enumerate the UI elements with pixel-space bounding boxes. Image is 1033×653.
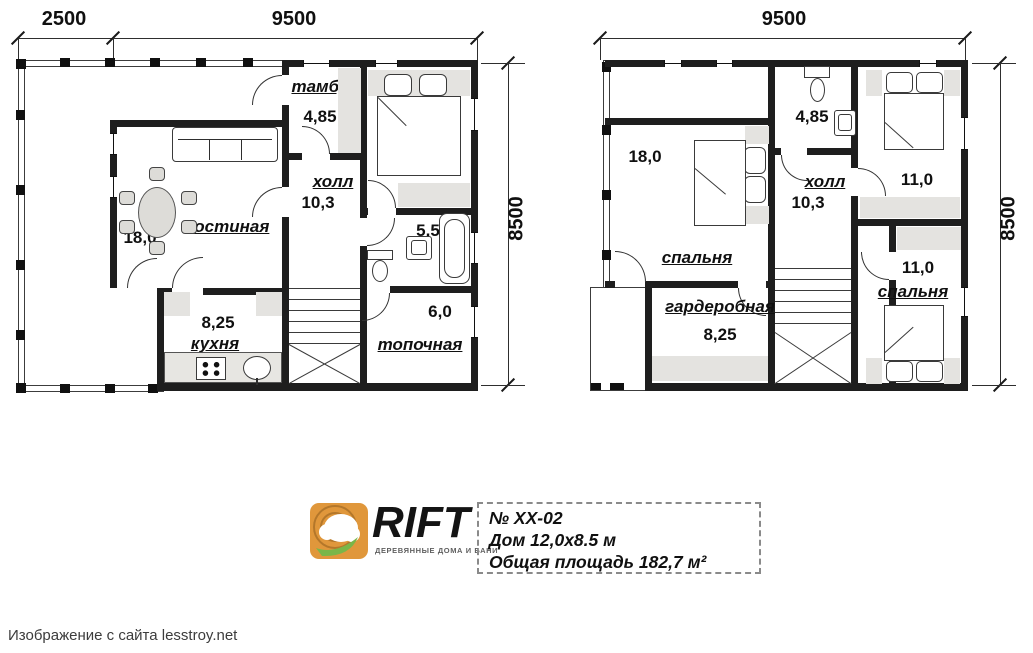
door-arc-icon: [302, 126, 330, 154]
pillow-icon: [744, 147, 766, 174]
terrace-wall: [18, 385, 164, 392]
room-label-bedroom: спальня: [868, 282, 958, 302]
wall: [360, 246, 367, 286]
floor-plan-sheet: 2500 9500 8500: [0, 0, 1033, 653]
post: [60, 58, 70, 67]
window-icon: [664, 60, 682, 67]
pillow-icon: [916, 72, 943, 93]
wall: [360, 60, 367, 160]
sink-icon: [411, 240, 427, 255]
project-size: Дом 12,0х8.5 м: [489, 529, 749, 551]
wall: [282, 217, 289, 383]
closet-icon: [338, 68, 361, 153]
pillow-icon: [419, 74, 447, 96]
wall: [775, 148, 781, 155]
dimension-label: 8500: [506, 185, 529, 253]
bed-icon: [884, 305, 944, 361]
dimension-label: 9500: [728, 8, 840, 31]
door-arc-icon: [368, 180, 396, 208]
nightstand-icon: [944, 358, 960, 384]
post: [16, 185, 25, 195]
nightstand-icon: [745, 206, 769, 224]
wall: [360, 208, 367, 218]
window-icon: [716, 60, 733, 67]
post: [105, 58, 115, 67]
room-area: 10,3: [288, 193, 348, 213]
dimension-label: 8500: [998, 185, 1021, 253]
window-icon: [919, 60, 937, 67]
dining-table-icon: [138, 187, 176, 238]
wall: [858, 219, 968, 226]
closet-icon: [860, 197, 960, 218]
post: [602, 125, 611, 135]
wall: [157, 383, 478, 391]
toilet-icon: [810, 78, 825, 102]
logo-brand-text: RIFT: [372, 498, 470, 548]
project-total-area: Общая площадь 182,7 м²: [489, 551, 749, 573]
wall: [889, 226, 896, 252]
extension-line: [113, 38, 114, 60]
project-number: № XX-02: [489, 507, 749, 529]
wall: [605, 118, 775, 125]
wall: [645, 383, 968, 391]
dimension-label: 9500: [238, 8, 350, 31]
wall: [605, 281, 615, 288]
window-icon: [110, 176, 117, 198]
dimension-line: [18, 38, 478, 39]
post: [602, 190, 611, 200]
logo-icon: [310, 503, 368, 560]
window-icon: [961, 287, 968, 317]
wall: [282, 60, 289, 75]
room-label-hall: холл: [795, 172, 855, 192]
room-area: 8,25: [690, 325, 750, 345]
stove-icon: [196, 357, 226, 380]
room-area: 11,0: [888, 258, 948, 278]
pillow-icon: [744, 176, 766, 203]
stairs-icon: [775, 268, 851, 333]
chair-icon: [181, 191, 197, 205]
door-arc-icon: [127, 258, 157, 288]
window-icon: [471, 98, 478, 131]
window-icon: [471, 306, 478, 338]
window-icon: [110, 133, 117, 155]
window-icon: [961, 117, 968, 150]
toilet-icon: [367, 250, 393, 260]
closet-icon: [897, 227, 961, 250]
nightstand-icon: [866, 70, 882, 96]
room-area: 18,0: [615, 147, 675, 167]
room-label-boiler: топочная: [368, 335, 472, 355]
nightstand-icon: [745, 126, 769, 144]
wall: [390, 286, 478, 293]
extension-line: [972, 385, 1016, 386]
door-arc-icon: [172, 257, 203, 288]
room-area: 8,25: [188, 313, 248, 333]
kitchen-sink-icon: [243, 356, 271, 380]
sofa-icon: [209, 139, 210, 160]
wall: [282, 105, 289, 153]
closet-icon: [652, 356, 768, 381]
dimension-label: 2500: [28, 8, 100, 31]
room-area: 10,3: [778, 193, 838, 213]
wall: [282, 153, 302, 160]
logo-icon: [310, 503, 368, 560]
extension-line: [18, 38, 19, 60]
pillow-icon: [886, 361, 913, 382]
door-arc-icon: [861, 252, 889, 280]
extension-line: [600, 38, 601, 60]
room-label-bedroom: спальня: [652, 248, 742, 268]
cabinet-icon: [256, 292, 282, 316]
post: [243, 58, 253, 67]
extension-line: [972, 63, 1016, 64]
toilet-icon: [372, 260, 388, 282]
nightstand-icon: [944, 70, 960, 96]
room-label-wardrobe: гардеробная: [660, 297, 780, 317]
post: [16, 330, 25, 340]
kitchen-sink-icon: [256, 378, 258, 385]
pillow-icon: [916, 361, 943, 382]
extension-line: [481, 385, 525, 386]
bed-icon: [694, 140, 746, 226]
source-caption: Изображение с сайта lesstroy.net: [8, 627, 237, 644]
wall: [646, 281, 738, 288]
post: [196, 58, 206, 67]
post: [16, 110, 25, 120]
sink-icon: [838, 114, 852, 131]
post: [60, 384, 70, 393]
sofa-icon: [172, 127, 278, 162]
door-arc-icon: [367, 218, 395, 246]
chair-icon: [119, 220, 135, 234]
room-area: 4,85: [782, 107, 842, 127]
sofa-icon: [178, 139, 272, 140]
post: [150, 58, 160, 67]
stairs-icon: [289, 288, 360, 345]
door-arc-icon: [252, 187, 282, 217]
pillow-icon: [886, 72, 913, 93]
room-area: 11,0: [887, 170, 947, 190]
door-arc-icon: [615, 251, 646, 282]
wall: [605, 60, 968, 67]
wall: [766, 281, 775, 288]
post: [105, 384, 115, 393]
closet-icon: [398, 183, 470, 207]
wall: [851, 219, 858, 383]
window-icon: [303, 60, 330, 67]
room-label-kitchen: кухня: [175, 334, 255, 354]
door-arc-icon: [252, 75, 282, 105]
toilet-icon: [804, 66, 830, 78]
post: [16, 383, 26, 393]
extension-line: [481, 63, 525, 64]
window-icon: [375, 60, 398, 67]
chair-icon: [181, 220, 197, 234]
post: [591, 383, 601, 390]
cabinet-icon: [164, 292, 190, 316]
sofa-icon: [241, 139, 242, 160]
wall: [110, 120, 289, 127]
wall: [768, 60, 775, 383]
pillow-icon: [384, 74, 412, 96]
door-arc-icon: [362, 293, 390, 321]
project-info-box: № XX-02 Дом 12,0х8.5 м Общая площадь 182…: [477, 502, 761, 574]
bed-icon: [884, 93, 944, 150]
post: [16, 59, 26, 69]
door-arc-icon: [858, 168, 886, 196]
wall: [645, 281, 652, 391]
window-icon: [471, 232, 478, 264]
chair-icon: [149, 241, 165, 255]
extension-line: [965, 38, 966, 60]
post: [610, 383, 624, 390]
room-area: 6,0: [412, 302, 468, 322]
post: [602, 250, 611, 260]
post: [16, 260, 25, 270]
chair-icon: [119, 191, 135, 205]
wall: [157, 288, 164, 391]
extension-line: [477, 38, 478, 60]
nightstand-icon: [866, 358, 882, 384]
room-label-hall: холл: [303, 172, 363, 192]
chair-icon: [149, 167, 165, 181]
bathtub-icon: [444, 219, 465, 278]
dimension-line: [600, 38, 965, 39]
balcony-outline: [590, 287, 646, 391]
